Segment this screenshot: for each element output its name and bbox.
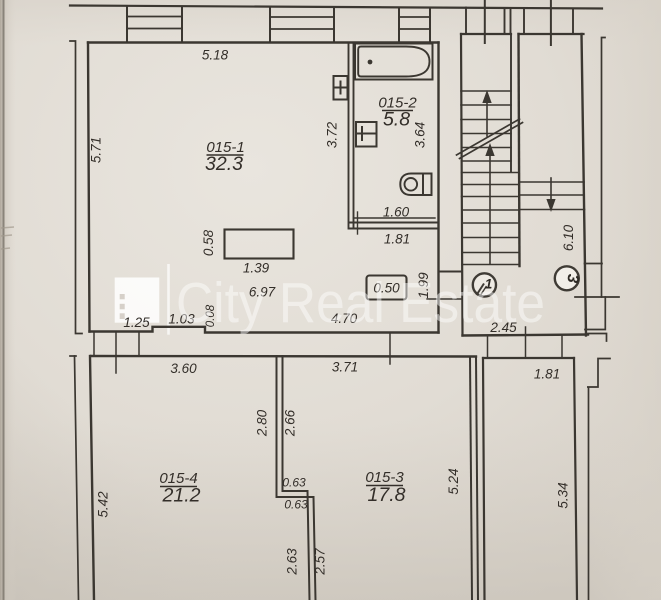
- svg-text:5.8: 5.8: [383, 109, 410, 131]
- svg-text:2.63: 2.63: [285, 548, 300, 576]
- svg-text:1.60: 1.60: [383, 205, 410, 220]
- svg-text:3.60: 3.60: [170, 361, 197, 376]
- svg-text:3.72: 3.72: [325, 121, 340, 148]
- svg-text:2.80: 2.80: [255, 409, 270, 437]
- svg-text:5.71: 5.71: [89, 137, 104, 163]
- svg-text:1.81: 1.81: [384, 232, 410, 247]
- svg-text:0.63: 0.63: [284, 498, 308, 512]
- svg-text:6.10: 6.10: [561, 224, 576, 251]
- svg-text:5.24: 5.24: [446, 468, 461, 494]
- svg-text:17.8: 17.8: [368, 484, 406, 506]
- svg-text:21.2: 21.2: [162, 485, 201, 507]
- svg-text:2.66: 2.66: [283, 409, 298, 437]
- svg-text:3.71: 3.71: [332, 360, 358, 375]
- svg-text:2.57: 2.57: [313, 548, 328, 576]
- svg-text:1.25: 1.25: [123, 315, 150, 330]
- svg-text:5.18: 5.18: [202, 48, 229, 63]
- svg-text:3: 3: [564, 273, 582, 283]
- svg-text:5.34: 5.34: [556, 482, 571, 508]
- svg-text:5.42: 5.42: [96, 491, 111, 518]
- svg-text:0.58: 0.58: [201, 229, 216, 256]
- svg-text:3.64: 3.64: [413, 122, 428, 148]
- svg-text:32.3: 32.3: [205, 153, 243, 175]
- svg-text:1.81: 1.81: [534, 367, 560, 382]
- svg-text:0.63: 0.63: [282, 476, 306, 490]
- svg-text:City Real Estate: City Real Estate: [176, 271, 545, 334]
